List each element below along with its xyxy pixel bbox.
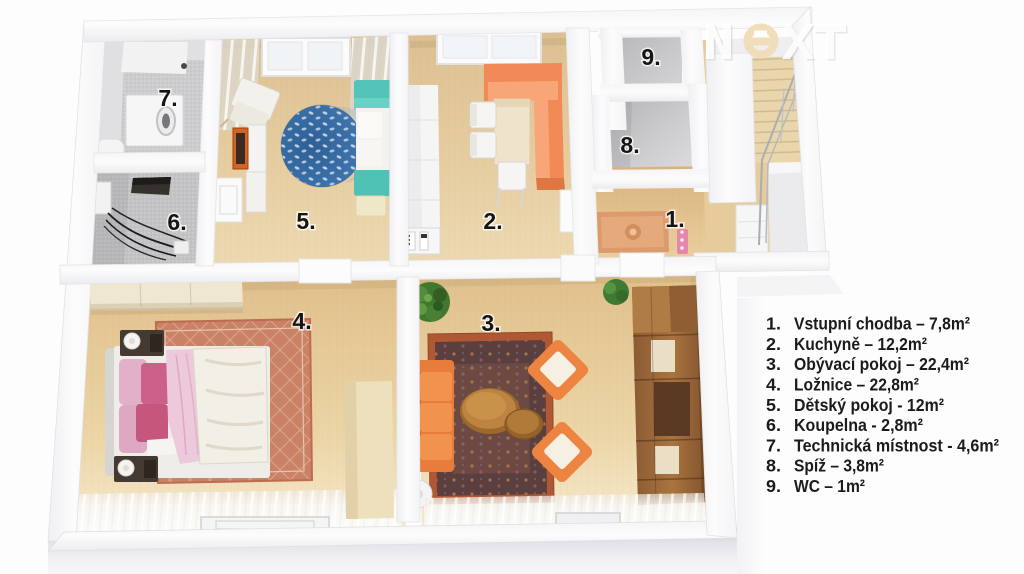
svg-text:5.: 5. <box>766 395 781 415</box>
svg-text:9.: 9. <box>766 476 781 496</box>
svg-text:8.: 8. <box>620 132 639 158</box>
svg-text:1.: 1. <box>766 314 781 334</box>
svg-text:Spíž – 3,8m²: Spíž – 3,8m² <box>794 456 884 476</box>
svg-text:7.: 7. <box>158 85 177 111</box>
svg-text:9.: 9. <box>641 44 660 70</box>
svg-text:3.: 3. <box>481 310 500 336</box>
svg-text:Kuchyně – 12,2m²: Kuchyně – 12,2m² <box>794 334 927 354</box>
svg-text:4.: 4. <box>766 375 781 395</box>
svg-text:Vstupní chodba – 7,8m²: Vstupní chodba – 7,8m² <box>794 314 970 334</box>
svg-text:4.: 4. <box>292 308 311 334</box>
svg-text:2.: 2. <box>766 334 781 354</box>
svg-text:Obývací pokoj – 22,4m²: Obývací pokoj – 22,4m² <box>794 354 969 374</box>
svg-text:7.: 7. <box>766 435 781 455</box>
svg-text:8.: 8. <box>766 456 781 476</box>
svg-text:Koupelna - 2,8m²: Koupelna - 2,8m² <box>794 415 923 435</box>
svg-text:6.: 6. <box>766 415 781 435</box>
svg-text:Ložnice – 22,8m²: Ložnice – 22,8m² <box>794 375 919 395</box>
svg-text:1.: 1. <box>665 206 684 232</box>
svg-text:Technická místnost - 4,6m²: Technická místnost - 4,6m² <box>794 435 999 455</box>
svg-text:2.: 2. <box>483 208 502 234</box>
svg-text:6.: 6. <box>167 209 186 235</box>
svg-text:Dětský pokoj - 12m²: Dětský pokoj - 12m² <box>794 395 944 415</box>
svg-text:3.: 3. <box>766 354 781 374</box>
svg-text:5.: 5. <box>296 208 315 234</box>
svg-text:WC – 1m²: WC – 1m² <box>794 476 865 496</box>
